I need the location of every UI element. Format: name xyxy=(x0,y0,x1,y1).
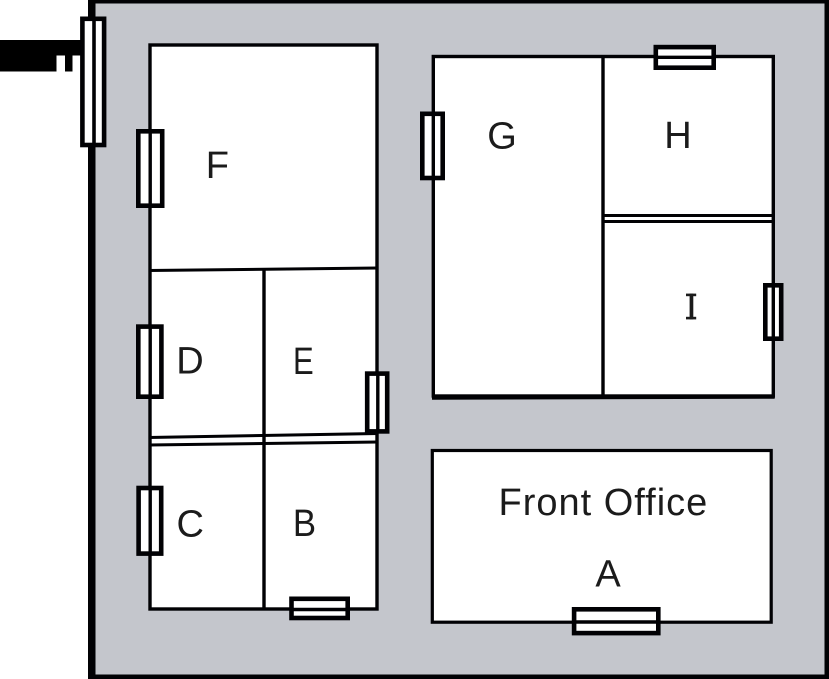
svg-text:G: G xyxy=(487,116,517,158)
svg-text:Front Office: Front Office xyxy=(498,482,708,524)
svg-text:A: A xyxy=(595,554,621,596)
svg-text:D: D xyxy=(176,341,203,383)
svg-text:E: E xyxy=(293,341,314,383)
svg-text:F: F xyxy=(206,145,229,187)
svg-text:C: C xyxy=(176,503,203,545)
svg-text:H: H xyxy=(664,115,691,157)
svg-text:B: B xyxy=(293,503,316,545)
